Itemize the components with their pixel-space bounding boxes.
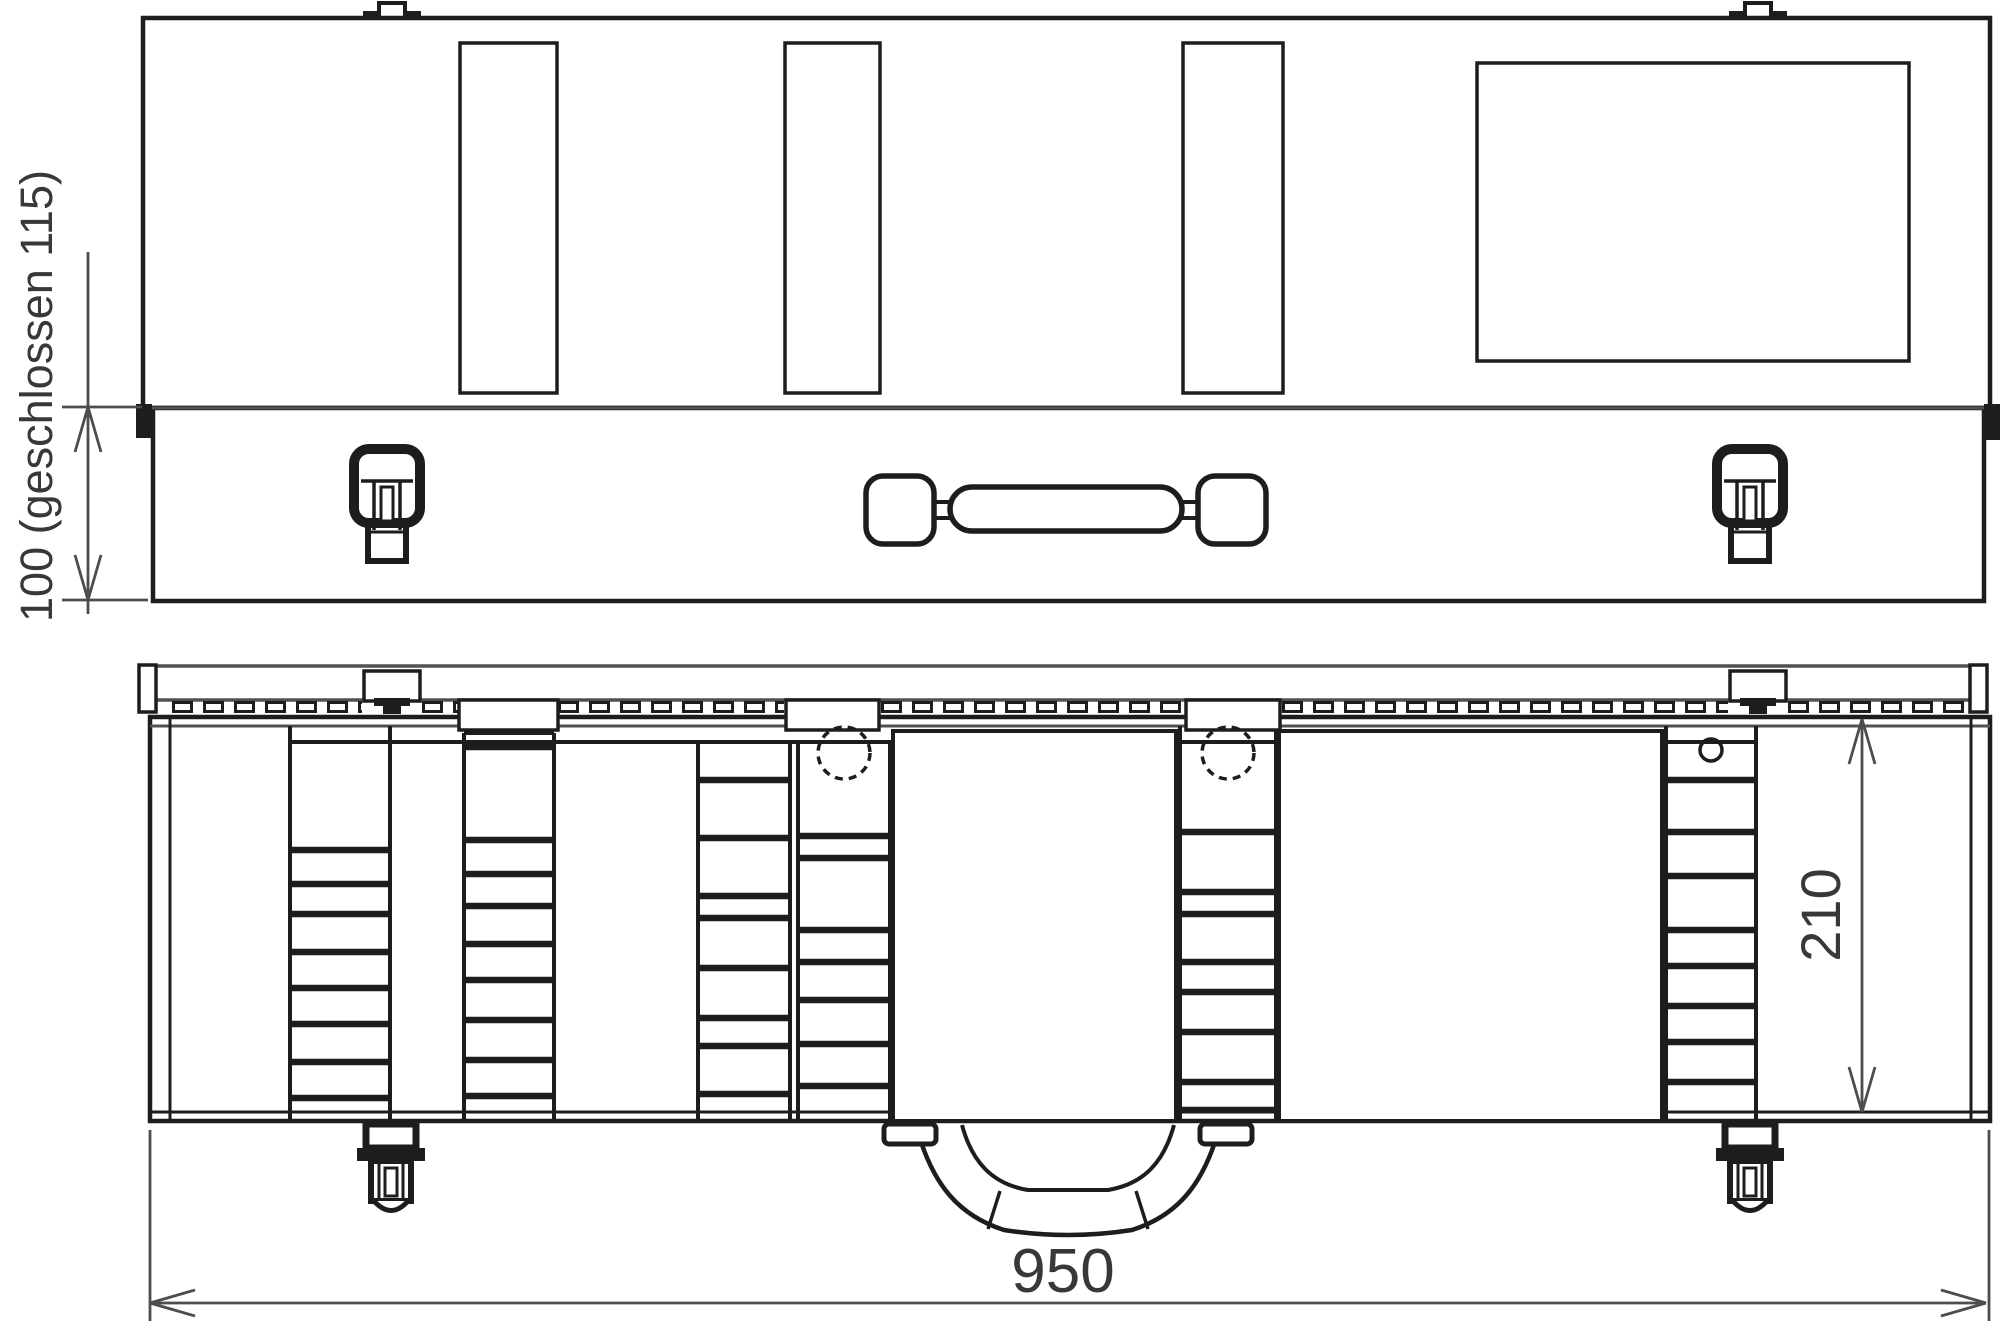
handle-end-cap-left [866,476,934,544]
hidden-hole-1 [818,727,870,779]
clamp-notch-box-3 [1186,700,1280,730]
technical-drawing-page: 100 (geschlossen 115) 210 950 [0,0,2000,1325]
hinge-rail-end-left [139,665,156,712]
latch-bottom-left [357,1124,425,1211]
latch-bottom-right [1716,1124,1784,1211]
tool-ladder-2 [464,733,554,1120]
dimension-depth-label: 210 [1789,868,1852,961]
lid-step-left [136,404,152,438]
front-view-closed-case [136,3,2000,601]
hinge-rail-end-right [1970,665,1987,712]
compartment-wide-1 [893,731,1176,1121]
compartment-wide-2 [1279,731,1662,1121]
handle-lug-left [884,1124,936,1144]
dimension-width: 950 [150,1130,1989,1321]
hinge-tab-open-left [364,671,420,714]
lid-step-right [1984,404,2000,440]
top-view-open-case [139,665,1990,1235]
carry-handle-folded [884,1124,1252,1235]
tool-ladder-6 [1664,726,1758,1120]
dimension-width-label: 950 [1011,1237,1114,1306]
lid-strap-1 [460,43,557,393]
tool-ladder-5 [1178,726,1278,1120]
tool-ladder-4 [798,742,890,1120]
handle-lug-right [1200,1124,1252,1144]
clamp-notch-box-1 [459,700,558,730]
case-technical-drawing: 100 (geschlossen 115) 210 950 [0,0,2000,1325]
label-window [1477,63,1909,361]
tool-ladder-3 [698,742,790,1120]
dimension-depth: 210 [1789,719,1875,1112]
handle-end-cap-right [1198,476,1266,544]
hidden-hole-2 [1202,727,1254,779]
lid-strap-2 [785,43,880,393]
dimension-height-label: 100 (geschlossen 115) [11,170,62,622]
handle-grip-bar [950,487,1182,531]
clamp-notch-box-2 [786,700,879,730]
lid-strap-3 [1183,43,1283,393]
tool-ladder-1 [290,726,390,1120]
dimension-height: 100 (geschlossen 115) [11,170,148,622]
hinge-tab-open-right [1730,671,1786,714]
